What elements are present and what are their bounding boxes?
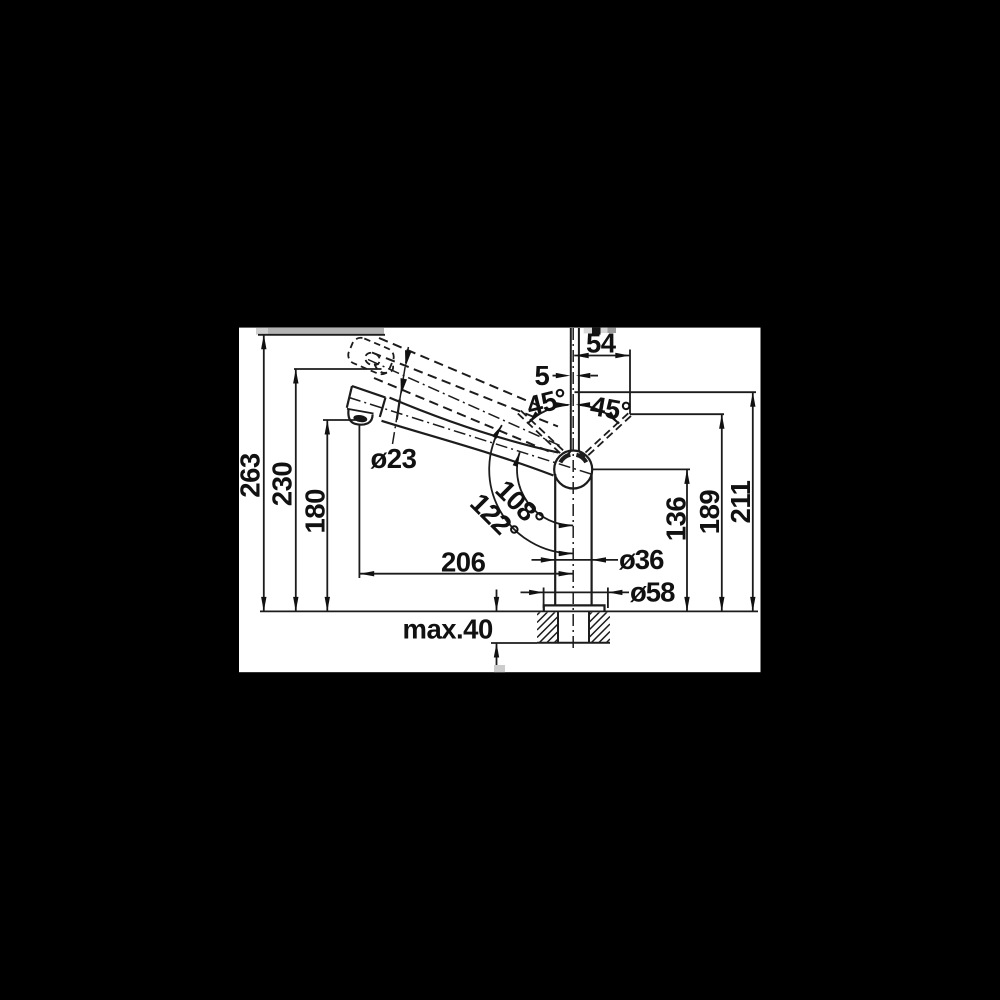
svg-text:max.40: max.40 [403,614,493,645]
svg-text:ø36: ø36 [619,544,664,575]
svg-text:136: 136 [661,497,692,542]
svg-text:180: 180 [299,489,330,534]
svg-text:189: 189 [694,490,725,535]
svg-text:211: 211 [725,480,756,523]
svg-text:54: 54 [586,328,617,359]
svg-text:263: 263 [235,453,266,498]
svg-text:206: 206 [441,547,486,578]
svg-text:ø23: ø23 [371,443,417,474]
svg-text:230: 230 [267,462,298,507]
svg-text:ø58: ø58 [630,577,675,608]
